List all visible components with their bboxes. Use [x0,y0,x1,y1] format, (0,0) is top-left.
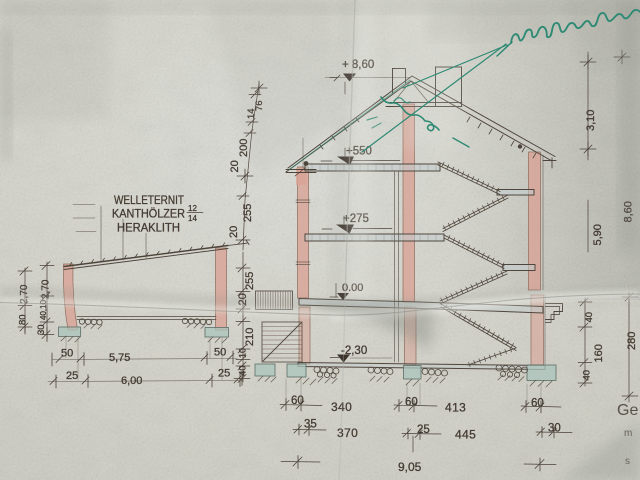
svg-text:25: 25 [417,424,430,436]
svg-text:80: 80 [18,314,29,325]
svg-text:5,75: 5,75 [109,352,130,364]
svg-text:280: 280 [626,332,638,350]
svg-text:KANTHÖLZER: KANTHÖLZER [112,209,185,221]
svg-text:50: 50 [214,347,226,359]
svg-text:160: 160 [593,344,605,362]
svg-text:20: 20 [229,160,241,172]
svg-text:25: 25 [66,370,78,382]
svg-text:210: 210 [244,328,256,346]
svg-text:255: 255 [244,272,256,290]
svg-text:255: 255 [242,204,254,222]
svg-text:3,10: 3,10 [585,110,597,131]
svg-text:12: 12 [188,204,197,213]
svg-text:9,05: 9,05 [398,460,422,474]
svg-text:60: 60 [531,398,544,410]
svg-text:35: 35 [304,419,317,431]
svg-text:30: 30 [548,423,561,435]
svg-text:WELLETERNIT: WELLETERNIT [114,195,184,207]
svg-text:20: 20 [228,226,240,238]
svg-text:60: 60 [291,395,304,407]
svg-text:Ge: Ge [617,402,638,419]
svg-text:5,90: 5,90 [592,224,604,245]
svg-text:6,00: 6,00 [121,375,142,387]
svg-text:413: 413 [445,401,466,415]
svg-text:-2,30: -2,30 [341,345,367,357]
svg-text:40: 40 [238,365,249,376]
svg-text:50: 50 [61,348,73,360]
svg-text:10: 10 [238,348,248,358]
svg-text:370: 370 [337,426,358,440]
svg-text:60: 60 [405,397,418,409]
svg-text:40: 40 [582,370,593,381]
svg-text:HERAKLITH: HERAKLITH [117,223,180,235]
svg-text:40: 40 [584,312,595,323]
svg-text:445: 445 [455,428,476,442]
svg-text:30: 30 [36,324,47,335]
svg-text:25: 25 [218,368,230,380]
svg-text:14: 14 [188,214,197,223]
